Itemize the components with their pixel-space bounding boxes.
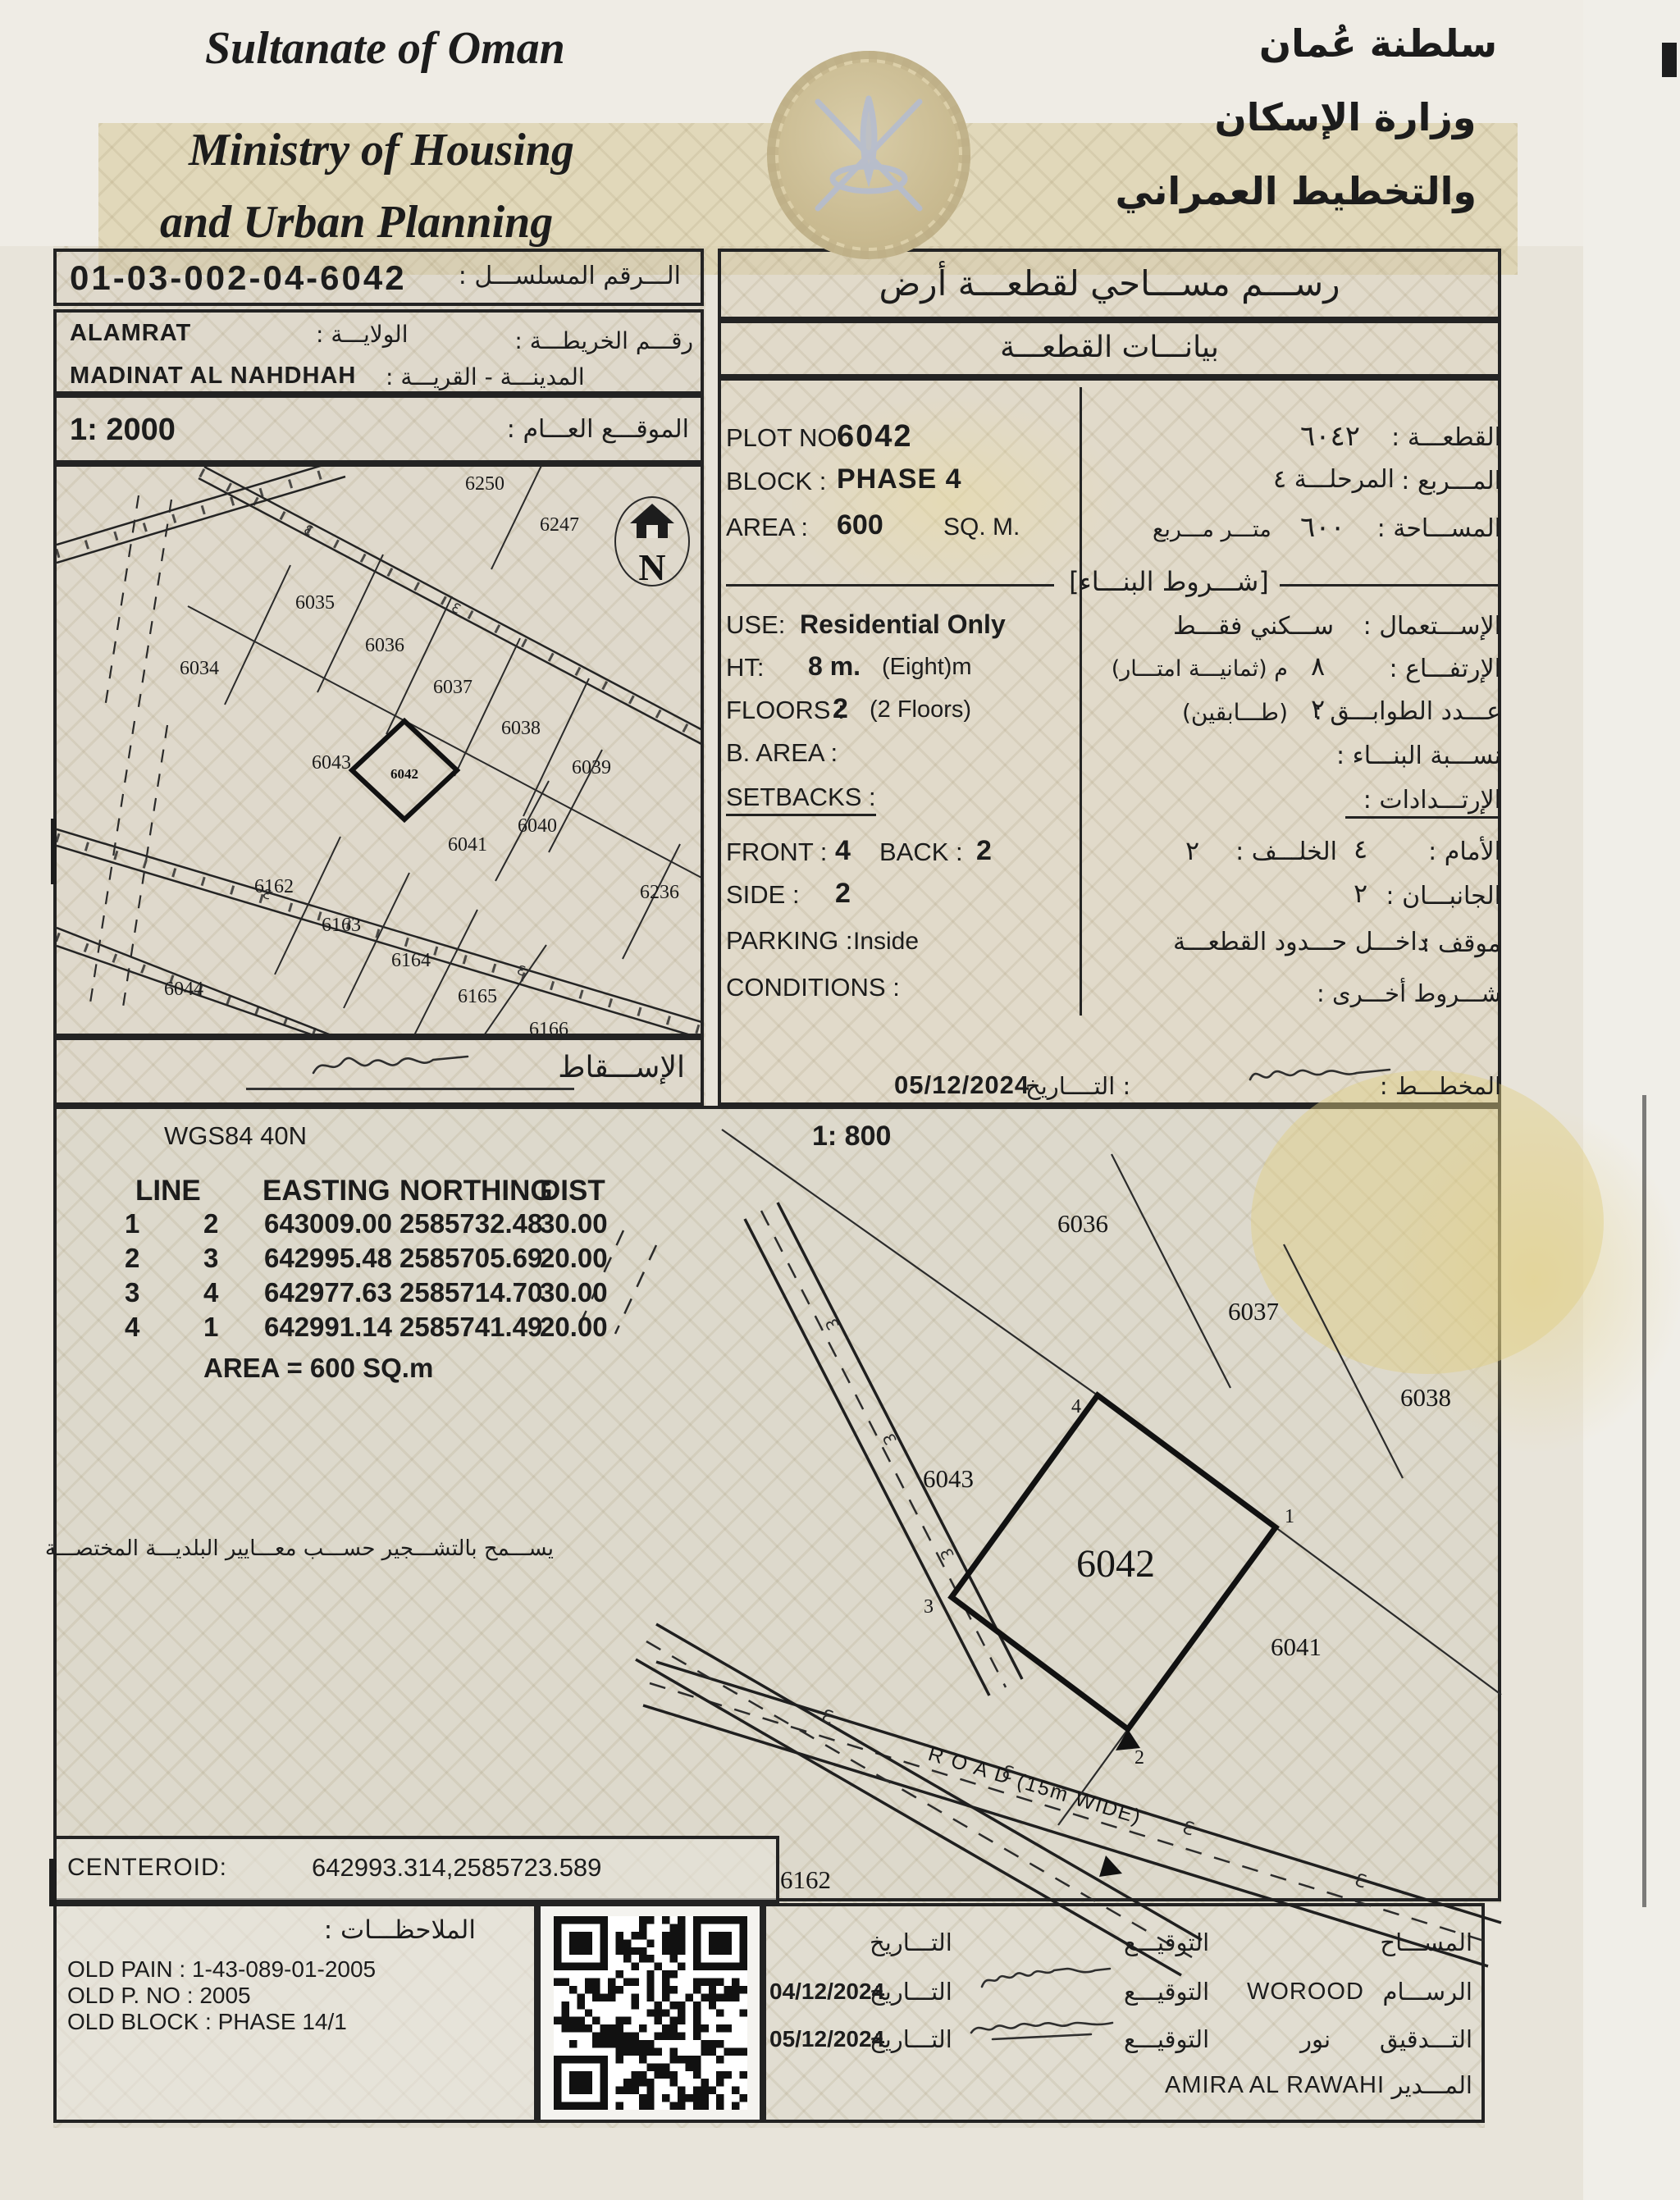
front-value-ar: ٤	[1354, 835, 1367, 865]
site-map-drawing: N Ɛ Ɛ Ɛ Ɛ 6250 6247 6035 6036 6034 6037 …	[57, 467, 704, 1037]
table-cell: 3	[203, 1244, 218, 1274]
plot-label: 6043	[312, 752, 351, 774]
plot-label: 6037	[433, 677, 472, 698]
draftsman-label: الرســـام	[1358, 1979, 1472, 2005]
plot-data-subtitle: بيانـــات القطعـــة	[718, 331, 1501, 364]
front-value: 4	[835, 835, 851, 866]
parking-label: PARKING :	[726, 927, 852, 956]
note-line: OLD PAIN : 1-43-089-01-2005	[67, 1956, 376, 1982]
table-cell: 2585714.70	[399, 1278, 542, 1308]
detail-plot-label: 6041	[1271, 1632, 1322, 1661]
plot-label: 6034	[180, 658, 219, 679]
surveyor-sign-label: التوقيـــع	[1124, 1929, 1209, 1956]
terms-rule-left	[726, 584, 1054, 587]
scan-artifact	[51, 819, 57, 884]
table-cell: 1	[125, 1209, 139, 1239]
city-label: المدينـــة - القريـــة :	[386, 364, 585, 390]
b-area-label: B. AREA :	[726, 739, 838, 768]
projection-signature	[271, 1048, 517, 1085]
conditions-label: CONDITIONS :	[726, 974, 900, 1002]
area-unit-ar: متـــر مـــربع	[1153, 518, 1271, 542]
detail-plot-label: 6043	[923, 1464, 974, 1493]
plot-label: 6040	[518, 815, 557, 837]
surveyor-label: المســـاح	[1358, 1929, 1472, 1956]
detail-plot-label-6042: 6042	[1076, 1542, 1155, 1586]
manager-name: AMIRA AL RAWAHI	[1165, 2072, 1385, 2098]
floors-extra: (2 Floors)	[870, 696, 971, 723]
audit-signature	[968, 2013, 1116, 2046]
table-cell: 2	[125, 1244, 139, 1274]
use-value: Residential Only	[800, 610, 1006, 640]
svg-text:Ɛ: Ɛ	[449, 600, 463, 617]
draftsman-signature	[980, 1965, 1112, 1998]
table-cell: 2585732.48	[399, 1209, 542, 1239]
table-cell: 643009.00	[264, 1209, 392, 1239]
note-line: OLD BLOCK : PHASE 14/1	[67, 2009, 347, 2034]
plot-label: 6035	[295, 592, 335, 614]
table-cell: 4	[203, 1278, 218, 1308]
table-cell: 642977.63	[264, 1278, 392, 1308]
plot-label: 6041	[448, 834, 487, 856]
table-cell: 2	[203, 1209, 218, 1239]
ministry-title-line3: and Urban Planning	[160, 197, 553, 249]
plot-label: 6166	[529, 1019, 568, 1037]
height-extra-ar: م (ثمانيـــة امتـــار)	[1083, 657, 1288, 682]
ministry-title-line2: Ministry of Housing	[189, 125, 574, 176]
detail-plot-label: 6038	[1400, 1383, 1451, 1412]
ministry-title-ar-line2: وزارة الإسكان	[1181, 97, 1509, 139]
scan-artifact	[1642, 1095, 1646, 1907]
svg-text:Ɛ: Ɛ	[936, 1545, 958, 1563]
floors-value: 2	[833, 693, 848, 724]
block-value: PHASE 4	[837, 463, 962, 495]
setbacks-label-ar: الإرتـــدادات :	[1345, 787, 1501, 819]
parking-value: Inside	[853, 928, 919, 956]
b-area-label-ar: نســـبة البنـــاء :	[1296, 742, 1501, 770]
floors-extra-ar: (طـــابقين)	[1148, 700, 1288, 725]
use-label: USE:	[726, 611, 785, 640]
plot-no-label: PLOT NO :	[726, 424, 851, 453]
side-label-ar: الجانبـــان :	[1345, 883, 1501, 911]
plot-label: 6036	[365, 635, 404, 656]
north-label: N	[638, 546, 665, 588]
area-note: AREA = 600 SQ.m	[203, 1353, 433, 1384]
table-cell: 20.00	[540, 1312, 608, 1343]
planner-label: المخطـــط :	[1403, 1073, 1501, 1099]
floors-label-ar: عـــدد الطوابـــق :	[1296, 698, 1501, 726]
survey-date: 05/12/2024	[894, 1071, 1029, 1100]
side-value: 2	[835, 878, 851, 909]
parking-value-ar: داخـــل حـــدود القطعـــة	[1173, 929, 1428, 956]
plot-no-value: 6042	[837, 419, 913, 454]
qr-code	[554, 1916, 747, 2110]
terms-rule-right	[1280, 584, 1501, 587]
vertex-label: 1	[1285, 1506, 1294, 1527]
vertex-label: 4	[1071, 1396, 1081, 1417]
plot-label: 6165	[458, 986, 497, 1007]
scan-artifact	[49, 1859, 57, 1906]
table-cell: 4	[125, 1312, 139, 1343]
survey-date-label: : التــــاريخ	[1025, 1073, 1130, 1099]
area-label: AREA :	[726, 513, 808, 542]
panel-divider	[1080, 387, 1082, 1016]
surveyor-date-label: التـــاريخ	[870, 1929, 952, 1956]
table-cell: 2585741.49	[399, 1312, 542, 1343]
audit-label: التـــدقيق	[1349, 2026, 1472, 2052]
note-line: OLD P. NO : 2005	[67, 1983, 251, 2008]
front-label: FRONT :	[726, 838, 827, 867]
manager-label: المـــدير	[1374, 2072, 1472, 2098]
map-no-label: رقـــم الخريطـــة :	[455, 328, 693, 354]
centeroid-value: 642993.314,2585723.589	[312, 1854, 601, 1883]
city-value: MADINAT AL NAHDHAH	[70, 363, 356, 389]
detail-map-drawing: Ɛ Ɛ Ɛ Ɛ Ɛ Ɛ Ɛ 6036 6037 6038 6043 6042 6…	[574, 1107, 1501, 1900]
plot-label: 6250	[465, 473, 504, 495]
floors-label: FLOORS :	[726, 696, 845, 725]
road-label: R O A D (15m WIDE)	[925, 1742, 1144, 1829]
serial-label: الـــرقم المسلســـل :	[386, 262, 681, 290]
table-cell: 30.00	[540, 1278, 608, 1308]
height-value: 8 m.	[808, 652, 861, 682]
draftsman-sign-label: التوقيـــع	[1124, 1979, 1209, 2005]
plot-label: 6163	[322, 915, 361, 936]
side-label: SIDE :	[726, 881, 800, 910]
table-cell: 2585705.69	[399, 1244, 542, 1274]
detail-plot-label: 6036	[1057, 1209, 1108, 1238]
detail-plot-label: 6162	[780, 1865, 831, 1894]
vertex-label: 2	[1134, 1747, 1144, 1769]
setbacks-label: SETBACKS :	[726, 783, 876, 816]
plot-label: 6039	[572, 757, 611, 778]
draftsman-name: WOROOD	[1247, 1979, 1364, 2005]
ministry-seal	[767, 51, 970, 259]
survey-document-page: Sultanate of Oman Ministry of Housing an…	[0, 0, 1680, 2200]
svg-text:Ɛ: Ɛ	[879, 1430, 901, 1448]
plot-label: 6038	[501, 718, 541, 739]
svg-text:Ɛ: Ɛ	[821, 1315, 843, 1333]
draftsman-date: 04/12/2024	[769, 1979, 884, 2004]
projection-label: الإســـقاط	[525, 1052, 685, 1084]
survey-title: رســـم مســـاحي لقطعـــة أرض	[718, 264, 1501, 303]
detail-plot-label: 6037	[1228, 1297, 1279, 1326]
audit-sign-label: التوقيـــع	[1124, 2026, 1209, 2052]
site-map-scale-label: الموقـــع العـــام :	[484, 416, 689, 444]
table-cell: 30.00	[540, 1209, 608, 1239]
plot-label: 6044	[164, 979, 203, 1000]
svg-text:Ɛ: Ɛ	[301, 522, 316, 539]
plot-label-6042: 6042	[390, 766, 418, 782]
audit-name: نور	[1300, 2026, 1331, 2052]
back-label: BACK :	[879, 838, 963, 867]
table-header-line: LINE	[135, 1175, 201, 1207]
centeroid-label: CENTEROID:	[67, 1854, 227, 1882]
height-extra: (Eight)m	[882, 654, 972, 680]
ministry-title-ar-line3: والتخطيط العمراني	[1148, 171, 1477, 213]
site-map-scale: 1: 2000	[70, 413, 176, 448]
plot-label: 6164	[391, 950, 431, 971]
area-label-ar: المســـاحة :	[1296, 515, 1501, 543]
serial-number: 01-03-002-04-6042	[70, 258, 407, 297]
back-label-ar: الخلـــف :	[1235, 838, 1337, 866]
audit-date: 05/12/2024	[769, 2026, 884, 2052]
tree-note: يســـمح بالتشـــجير حســـب معـــايير الب…	[131, 1537, 554, 1561]
back-value: 2	[976, 835, 992, 866]
area-unit: SQ. M.	[943, 513, 1020, 541]
plot-label: 6236	[640, 882, 679, 903]
table-cell: 642995.48	[264, 1244, 392, 1274]
table-cell: 20.00	[540, 1244, 608, 1274]
table-cell: 642991.14	[264, 1312, 392, 1343]
ministry-title-ar-line1: سلطنة عُمان	[1214, 23, 1542, 66]
site-map-box: N Ɛ Ɛ Ɛ Ɛ 6250 6247 6035 6036 6034 6037 …	[53, 463, 704, 1037]
block-label-ar: المـــربع :	[1296, 468, 1501, 495]
right-margin-paper	[1583, 0, 1680, 2200]
wilaya-value: ALAMRAT	[70, 320, 191, 346]
front-label-ar: الأمام :	[1395, 838, 1501, 866]
vertex-label: 3	[924, 1596, 934, 1618]
back-value-ar: ٢	[1185, 837, 1199, 866]
scan-artifact	[1662, 43, 1677, 77]
wilaya-label: الولايـــة :	[316, 322, 409, 347]
use-label-ar: الإســـتعمال :	[1296, 613, 1501, 641]
table-cell: 3	[125, 1278, 139, 1308]
plot-label: 6162	[254, 876, 294, 897]
table-header-easting: EASTING	[262, 1175, 390, 1207]
table-header-dist: DIST	[540, 1175, 605, 1207]
conditions-label-ar: شـــروط أخـــرى :	[1321, 980, 1501, 1006]
table-header-northing: NORTHING	[399, 1175, 553, 1207]
plot-no-label-ar: القطعـــة :	[1296, 424, 1501, 452]
oman-emblem-icon	[767, 51, 970, 259]
notes-label: الملاحظـــات :	[205, 1916, 476, 1945]
datum-label: WGS84 40N	[164, 1122, 307, 1151]
area-value: 600	[837, 509, 883, 541]
height-label: HT:	[726, 654, 765, 682]
plot-label: 6247	[540, 514, 579, 536]
block-label: BLOCK :	[726, 468, 826, 496]
height-label-ar: الإرتفـــاع :	[1296, 655, 1501, 683]
projection-signature-line	[246, 1088, 574, 1090]
building-terms-header: [شـــروط البنـــاء]	[1062, 568, 1276, 597]
parking-label-ar: موقف :	[1411, 930, 1501, 958]
ministry-title-line1: Sultanate of Oman	[205, 23, 565, 75]
detail-map-scale: 1: 800	[812, 1121, 891, 1152]
table-cell: 1	[203, 1312, 218, 1343]
